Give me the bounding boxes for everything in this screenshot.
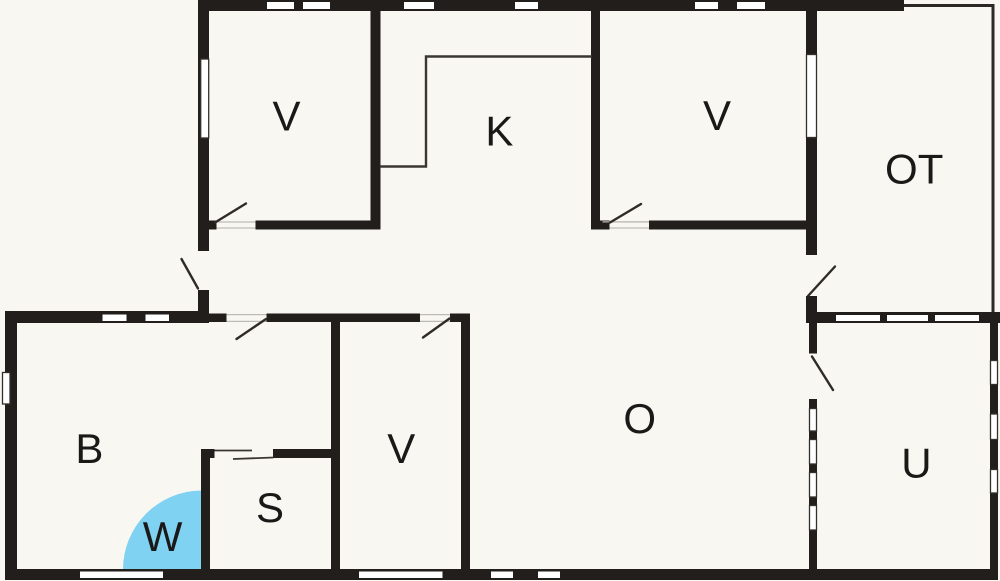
svg-text:V: V (387, 425, 415, 472)
svg-text:U: U (901, 440, 931, 487)
svg-text:W: W (143, 513, 183, 560)
svg-text:S: S (256, 484, 284, 531)
svg-text:B: B (75, 425, 103, 472)
svg-text:V: V (272, 92, 300, 139)
svg-text:K: K (485, 108, 513, 155)
svg-text:V: V (703, 92, 731, 139)
svg-text:OT: OT (885, 145, 943, 192)
svg-text:O: O (623, 395, 656, 442)
